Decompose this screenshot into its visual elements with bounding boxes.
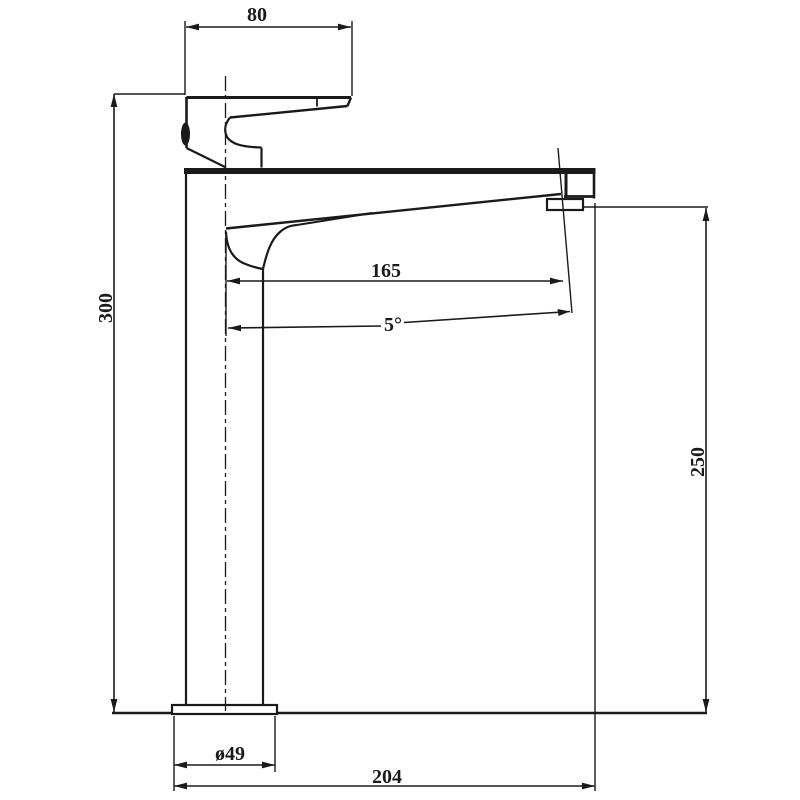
arrowhead-top bbox=[111, 94, 118, 107]
dimension-base-diameter: ø49 bbox=[174, 716, 275, 791]
arrowhead-left bbox=[186, 24, 199, 31]
handle-pivot-cap bbox=[181, 123, 190, 146]
dimension-spout-height: 250 bbox=[583, 207, 709, 712]
base-plate bbox=[172, 705, 277, 714]
dim-label-overall-height: 300 bbox=[95, 293, 117, 323]
arrowhead-right bbox=[582, 783, 595, 790]
spout-top-edge bbox=[226, 194, 561, 229]
aerator-outlet bbox=[547, 199, 583, 210]
arrowhead-right bbox=[338, 24, 351, 31]
arrowhead-left bbox=[227, 278, 240, 285]
dimension-overall-height: 300 bbox=[95, 94, 185, 712]
body-column bbox=[186, 174, 263, 705]
dim-label-spout-height: 250 bbox=[687, 447, 709, 477]
dim-label-top-width: 80 bbox=[247, 4, 267, 26]
dimension-line-left bbox=[228, 326, 381, 328]
arrowhead-right bbox=[262, 762, 275, 769]
dim-label-spout-reach: 165 bbox=[371, 260, 401, 282]
arrowhead-right bbox=[550, 278, 563, 285]
handle-lever bbox=[181, 97, 351, 168]
handle-bottom-chamfer bbox=[187, 148, 227, 168]
dim-label-spout-angle: 5° bbox=[384, 314, 402, 336]
faucet-outline bbox=[112, 76, 707, 714]
spout-neck-upper-curve bbox=[263, 225, 297, 269]
technical-drawing-canvas: 80 300 165 5° 250 ø4 bbox=[0, 0, 800, 800]
dimension-line-right bbox=[404, 312, 570, 323]
dim-label-overall-depth: 204 bbox=[372, 766, 402, 788]
arrowhead-left bbox=[174, 762, 187, 769]
spout bbox=[226, 172, 595, 269]
arrowhead-top bbox=[703, 208, 710, 221]
handle-neck-curve bbox=[225, 118, 261, 148]
arrowhead-left bbox=[174, 783, 187, 790]
dimension-overall-depth: 204 bbox=[174, 203, 595, 791]
arrowhead-bottom bbox=[703, 699, 710, 712]
spout-neck-lower-curve bbox=[226, 232, 263, 270]
handle-underside-edge bbox=[230, 106, 348, 118]
arrowhead-bottom bbox=[111, 699, 118, 712]
dim-label-base-diameter: ø49 bbox=[215, 743, 245, 765]
arrowhead-left bbox=[228, 325, 241, 331]
arrowhead-right bbox=[558, 309, 571, 316]
faucet-technical-drawing: 80 300 165 5° 250 ø4 bbox=[0, 0, 800, 800]
dimension-spout-angle: 5° bbox=[228, 148, 572, 336]
dimension-top-width: 80 bbox=[185, 4, 352, 96]
